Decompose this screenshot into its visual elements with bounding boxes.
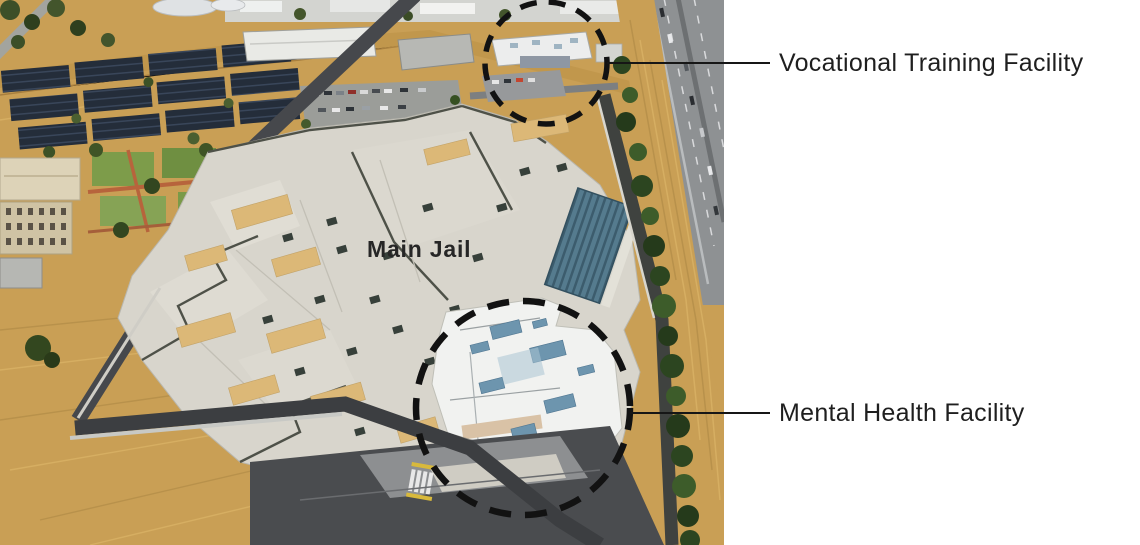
figure-canvas: Main Jail Vocational Training Facility M… xyxy=(0,0,1140,545)
mental-health-facility-label: Mental Health Facility xyxy=(779,399,1025,427)
main-jail-label: Main Jail xyxy=(367,237,471,262)
annotated-aerial-figure xyxy=(0,0,1140,545)
vocational-training-facility-label: Vocational Training Facility xyxy=(779,49,1083,77)
